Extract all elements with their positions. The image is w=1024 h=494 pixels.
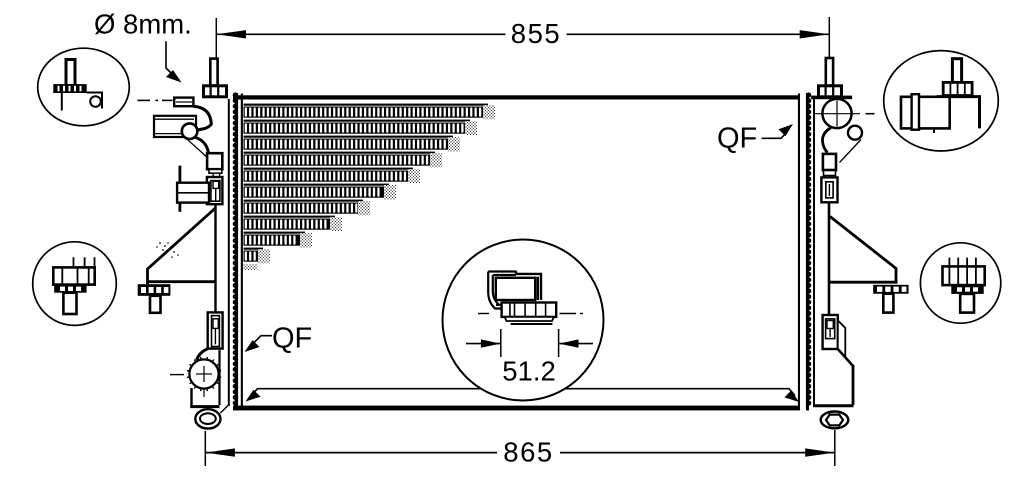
svg-text:QF: QF [272, 323, 312, 355]
svg-text:51.2: 51.2 [502, 356, 556, 387]
svg-text:855: 855 [511, 18, 561, 49]
svg-text:865: 865 [503, 437, 553, 468]
svg-text:QF: QF [717, 123, 757, 155]
svg-text:Ø 8mm.: Ø 8mm. [94, 9, 192, 40]
